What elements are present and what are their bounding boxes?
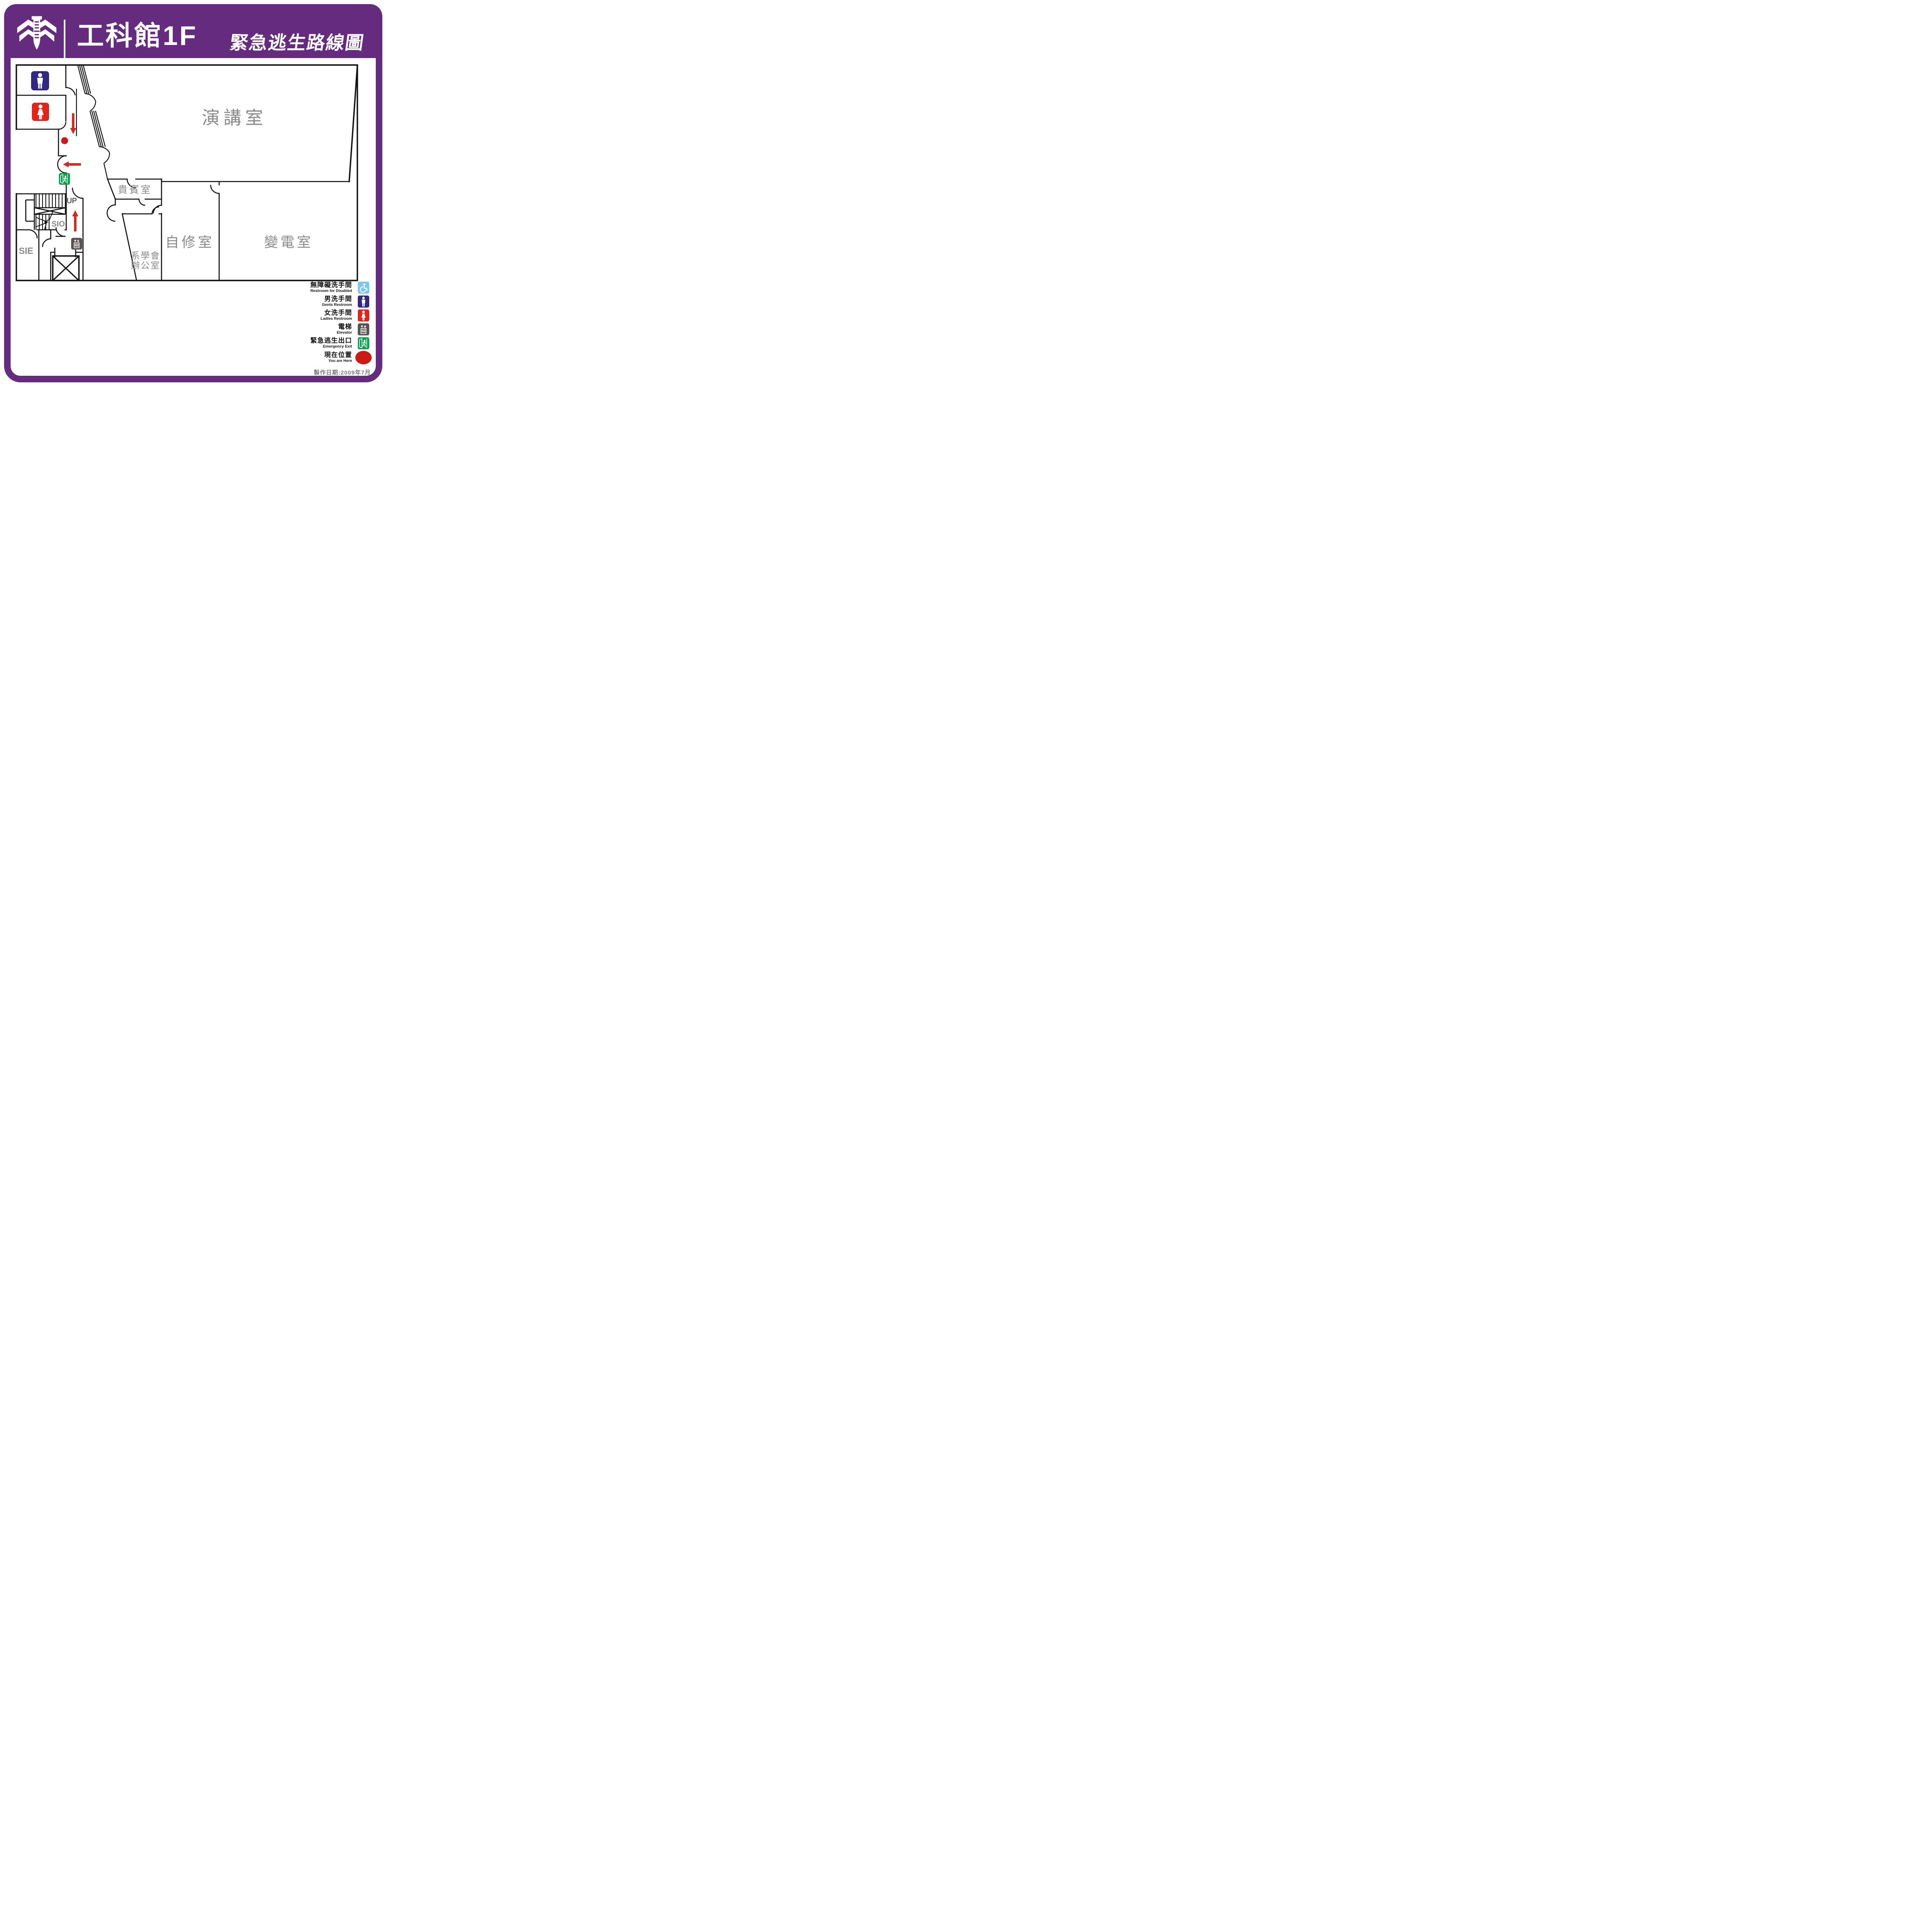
route-arrow-left-head bbox=[63, 162, 69, 168]
legend-zh-accessible: 無障礙洗手間 bbox=[310, 282, 352, 289]
legend-en-ladies: Ladies Restroom bbox=[321, 317, 352, 321]
legend-row-elevator: 電梯 Elevator bbox=[337, 323, 372, 336]
legend-zh-elevator: 電梯 bbox=[338, 324, 352, 331]
elevator-icon bbox=[358, 323, 369, 336]
legend-zh-ladies: 女洗手間 bbox=[324, 310, 352, 317]
evacuation-map-sign: 工科館1F 緊急逃生路線圖 bbox=[0, 0, 386, 386]
legend-en-exit: Emergency Exit bbox=[323, 345, 352, 349]
legend-row-exit: 緊急逃生出口 Emergency Exit bbox=[310, 337, 372, 350]
legend-row-ladies: 女洗手間 Ladies Restroom bbox=[321, 309, 372, 322]
room-label-sio: SIO bbox=[52, 220, 65, 229]
room-label-vip: 貴賓室 bbox=[118, 184, 152, 195]
room-label-self-study: 自修室 bbox=[165, 235, 214, 250]
female-icon bbox=[358, 309, 369, 322]
legend-zh-gents: 男洗手間 bbox=[324, 296, 352, 303]
legend-en-gents: Gents Restroom bbox=[322, 303, 352, 307]
legend-row-accessible: 無障礙洗手間 Restroom for Disabled bbox=[310, 281, 372, 294]
male-icon bbox=[358, 295, 369, 308]
elevator-shaft bbox=[53, 256, 79, 280]
legend-row-gents: 男洗手間 Gents Restroom bbox=[322, 295, 372, 308]
legend: 無障礙洗手間 Restroom for Disabled 男洗手間 Gents … bbox=[310, 281, 372, 366]
wheelchair-icon bbox=[358, 281, 369, 294]
gents-restroom-icon bbox=[31, 71, 49, 90]
production-date: 製作日期:2009年7月 bbox=[314, 368, 371, 377]
route-arrow-up-head bbox=[72, 210, 79, 216]
room-label-assoc-line2: 辦公室 bbox=[131, 260, 160, 271]
you-are-here-dot bbox=[355, 351, 372, 364]
room-label-assoc-line1: 系學會 bbox=[131, 251, 160, 261]
emergency-exit-icon bbox=[59, 173, 70, 185]
legend-zh-exit: 緊急逃生出口 bbox=[310, 338, 352, 345]
legend-en-you-are-here: You are Here bbox=[328, 359, 352, 363]
legend-en-elevator: Elevator bbox=[337, 331, 352, 335]
room-label-sie: SIE bbox=[19, 246, 33, 256]
room-label-transformer: 變電室 bbox=[264, 235, 313, 250]
legend-en-accessible: Restroom for Disabled bbox=[310, 289, 352, 293]
legend-row-you-are-here: 現在位置 You are Here bbox=[324, 351, 372, 364]
stairs-up-label: UP bbox=[67, 197, 77, 205]
legend-zh-you-are-here: 現在位置 bbox=[324, 352, 352, 359]
elevator-icon bbox=[71, 238, 82, 250]
route-arrow-down-head bbox=[70, 128, 76, 134]
emergency-exit-icon bbox=[358, 337, 369, 350]
room-label-lecture: 演講室 bbox=[202, 108, 267, 128]
lecture-hall-slanted-wall bbox=[76, 65, 110, 179]
you-are-here-dot bbox=[61, 137, 68, 144]
ladies-restroom-icon bbox=[32, 103, 49, 121]
